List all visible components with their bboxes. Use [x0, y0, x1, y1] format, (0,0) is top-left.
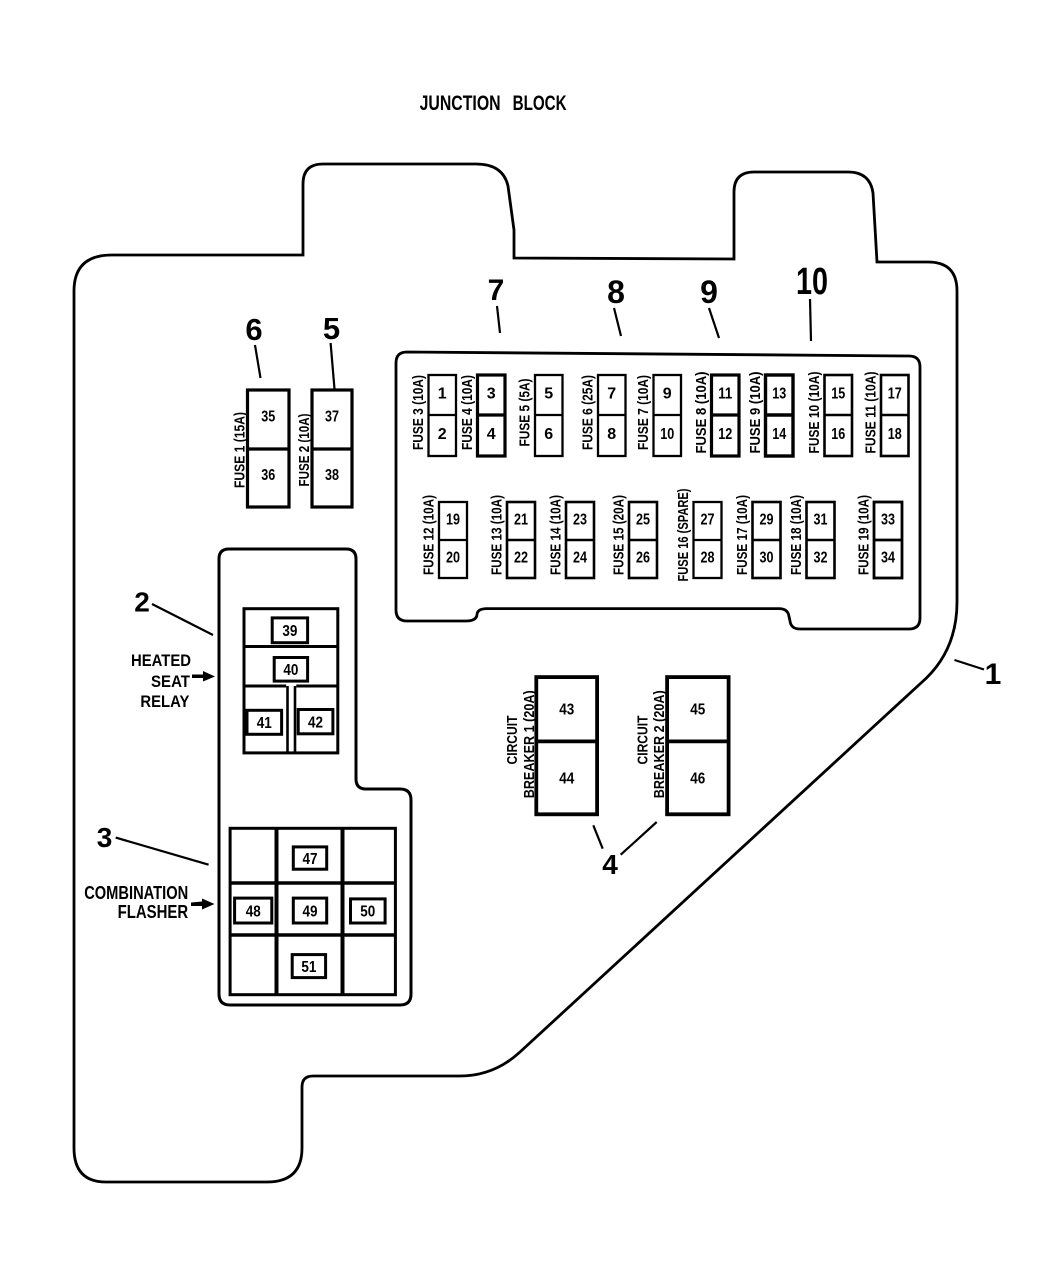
svg-text:FUSE 9 (10A): FUSE 9 (10A) — [747, 372, 764, 454]
svg-text:7: 7 — [607, 386, 616, 403]
svg-text:FUSE 7 (10A): FUSE 7 (10A) — [635, 375, 652, 450]
svg-text:CIRCUIT: CIRCUIT — [504, 716, 521, 765]
svg-text:33: 33 — [881, 512, 895, 529]
svg-text:22: 22 — [514, 550, 528, 567]
svg-text:35: 35 — [261, 409, 275, 426]
svg-text:37: 37 — [325, 409, 339, 426]
svg-text:48: 48 — [246, 904, 261, 921]
svg-text:10: 10 — [796, 261, 828, 303]
svg-text:3: 3 — [487, 386, 496, 403]
svg-text:13: 13 — [772, 386, 786, 403]
svg-text:FUSE 3 (10A): FUSE 3 (10A) — [410, 375, 427, 450]
svg-text:51: 51 — [301, 959, 316, 976]
svg-text:30: 30 — [760, 550, 774, 567]
svg-text:COMBINATION: COMBINATION — [84, 883, 188, 903]
svg-text:2: 2 — [438, 426, 447, 443]
svg-text:16: 16 — [831, 426, 845, 443]
svg-text:47: 47 — [303, 851, 318, 868]
svg-text:19: 19 — [446, 512, 460, 529]
svg-text:46: 46 — [690, 771, 705, 788]
svg-text:14: 14 — [772, 426, 786, 443]
svg-text:50: 50 — [360, 904, 375, 921]
svg-text:5: 5 — [323, 311, 340, 346]
svg-text:4: 4 — [602, 849, 618, 880]
svg-text:11: 11 — [718, 386, 732, 403]
svg-text:43: 43 — [559, 702, 574, 719]
svg-text:SEAT: SEAT — [151, 672, 191, 691]
svg-text:FUSE 5 (5A): FUSE 5 (5A) — [517, 379, 534, 447]
svg-text:3: 3 — [97, 822, 113, 853]
svg-text:40: 40 — [283, 662, 298, 679]
svg-text:26: 26 — [636, 550, 650, 567]
svg-text:10: 10 — [660, 426, 674, 443]
svg-text:FUSE 14 (10A): FUSE 14 (10A) — [548, 495, 565, 575]
svg-text:1: 1 — [985, 658, 1002, 691]
svg-text:31: 31 — [814, 512, 828, 529]
svg-text:FUSE 17 (10A): FUSE 17 (10A) — [734, 495, 751, 575]
svg-text:FUSE 13 (10A): FUSE 13 (10A) — [489, 495, 506, 575]
svg-text:24: 24 — [573, 550, 587, 567]
svg-text:2: 2 — [134, 586, 150, 617]
svg-text:7: 7 — [488, 274, 505, 307]
svg-text:39: 39 — [282, 623, 297, 640]
svg-text:8: 8 — [607, 426, 616, 443]
svg-text:FUSE 8 (10A): FUSE 8 (10A) — [693, 372, 710, 454]
svg-text:FUSE 15 (20A): FUSE 15 (20A) — [611, 495, 628, 575]
svg-text:28: 28 — [701, 550, 715, 567]
svg-text:25: 25 — [636, 512, 650, 529]
svg-text:32: 32 — [814, 550, 828, 567]
svg-text:36: 36 — [261, 467, 275, 484]
svg-text:44: 44 — [559, 771, 574, 788]
svg-text:42: 42 — [308, 715, 323, 732]
svg-text:HEATED: HEATED — [131, 651, 191, 670]
svg-text:4: 4 — [487, 426, 496, 443]
svg-text:FUSE 19 (10A): FUSE 19 (10A) — [856, 495, 873, 575]
svg-text:17: 17 — [888, 386, 902, 403]
svg-text:FLASHER: FLASHER — [118, 902, 189, 922]
svg-text:FUSE 16 (SPARE): FUSE 16 (SPARE) — [675, 489, 692, 582]
svg-text:8: 8 — [607, 274, 625, 310]
svg-text:21: 21 — [514, 512, 528, 529]
svg-text:FUSE 11 (10A): FUSE 11 (10A) — [863, 372, 880, 454]
svg-text:FUSE 10 (10A): FUSE 10 (10A) — [806, 372, 823, 454]
svg-text:9: 9 — [663, 386, 672, 403]
svg-text:FUSE 18 (10A): FUSE 18 (10A) — [788, 495, 805, 575]
svg-text:CIRCUIT: CIRCUIT — [635, 716, 652, 765]
svg-text:5: 5 — [544, 386, 553, 403]
svg-text:27: 27 — [701, 512, 715, 529]
svg-text:12: 12 — [718, 426, 732, 443]
svg-text:38: 38 — [325, 467, 339, 484]
svg-text:41: 41 — [257, 715, 272, 732]
svg-text:BLOCK: BLOCK — [513, 92, 567, 115]
svg-text:49: 49 — [303, 904, 318, 921]
svg-text:FUSE 6 (25A): FUSE 6 (25A) — [580, 375, 597, 450]
svg-text:6: 6 — [245, 312, 262, 347]
svg-text:29: 29 — [760, 512, 774, 529]
svg-text:JUNCTION: JUNCTION — [420, 92, 501, 115]
svg-text:15: 15 — [831, 386, 845, 403]
svg-text:23: 23 — [573, 512, 587, 529]
svg-text:18: 18 — [888, 426, 902, 443]
svg-text:34: 34 — [881, 550, 895, 567]
svg-text:9: 9 — [700, 274, 718, 310]
svg-text:6: 6 — [544, 426, 553, 443]
svg-text:20: 20 — [446, 550, 460, 567]
svg-text:45: 45 — [690, 702, 705, 719]
svg-text:RELAY: RELAY — [140, 692, 190, 711]
svg-text:1: 1 — [438, 386, 447, 403]
svg-text:FUSE 4 (10A): FUSE 4 (10A) — [459, 375, 476, 450]
svg-text:FUSE 12 (10A): FUSE 12 (10A) — [421, 495, 438, 575]
